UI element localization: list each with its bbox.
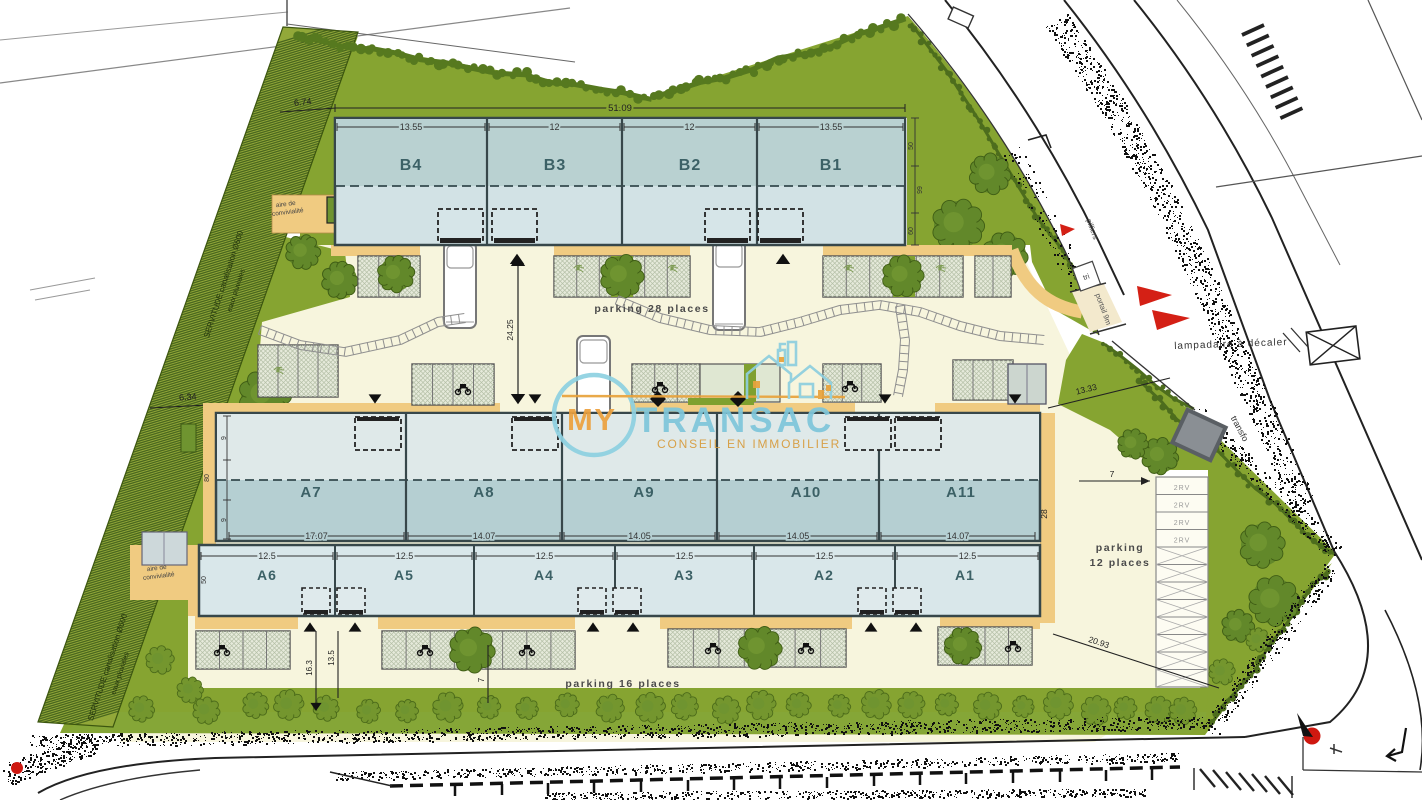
svg-text:6.74: 6.74 — [293, 96, 311, 108]
svg-text:2RV: 2RV — [1174, 538, 1191, 545]
svg-text:MY: MY — [567, 402, 617, 437]
svg-text:A3: A3 — [674, 567, 694, 583]
svg-text:2RV: 2RV — [1174, 485, 1191, 492]
svg-text:A6: A6 — [257, 567, 277, 583]
svg-text:A7: A7 — [300, 484, 321, 501]
svg-text:14.07: 14.07 — [947, 531, 970, 541]
svg-text:A9: A9 — [633, 484, 654, 501]
svg-text:A2: A2 — [814, 567, 834, 583]
svg-text:B1: B1 — [820, 157, 842, 174]
svg-text:50: 50 — [201, 576, 208, 584]
svg-text:60: 60 — [908, 227, 915, 235]
svg-text:parking: parking — [1096, 542, 1144, 554]
svg-text:B3: B3 — [544, 157, 566, 174]
svg-text:51.09: 51.09 — [608, 103, 632, 114]
svg-text:12.5: 12.5 — [959, 551, 977, 561]
svg-text:A11: A11 — [946, 484, 976, 501]
svg-text:14.05: 14.05 — [787, 531, 810, 541]
svg-text:12 places: 12 places — [1090, 557, 1151, 569]
svg-text:24.25: 24.25 — [505, 319, 515, 341]
svg-text:2RV: 2RV — [1174, 520, 1191, 527]
svg-text:28: 28 — [1039, 509, 1049, 519]
svg-text:99: 99 — [917, 186, 924, 194]
svg-text:7: 7 — [477, 677, 486, 682]
svg-text:14.07: 14.07 — [473, 531, 496, 541]
svg-text:12.5: 12.5 — [536, 551, 554, 561]
svg-text:9: 9 — [221, 518, 228, 522]
svg-text:B4: B4 — [400, 157, 422, 174]
svg-text:17.07: 17.07 — [305, 531, 328, 541]
svg-text:12: 12 — [684, 122, 694, 132]
svg-text:14.05: 14.05 — [628, 531, 651, 541]
svg-text:A10: A10 — [791, 484, 822, 501]
svg-text:A8: A8 — [473, 484, 494, 501]
svg-text:parking 28 places: parking 28 places — [594, 303, 709, 315]
svg-text:TRANSAC: TRANSAC — [636, 401, 835, 440]
svg-text:parking 16 places: parking 16 places — [565, 678, 680, 690]
svg-text:CONSEIL EN IMMOBILIER: CONSEIL EN IMMOBILIER — [657, 437, 841, 451]
svg-text:12.5: 12.5 — [816, 551, 834, 561]
svg-text:12.5: 12.5 — [676, 551, 694, 561]
svg-text:A1: A1 — [955, 567, 975, 583]
svg-text:A5: A5 — [394, 567, 414, 583]
svg-text:B2: B2 — [679, 157, 701, 174]
svg-text:12.5: 12.5 — [258, 551, 276, 561]
svg-text:9: 9 — [221, 436, 228, 440]
svg-text:2RV: 2RV — [1174, 503, 1191, 510]
svg-text:80: 80 — [204, 474, 211, 482]
svg-text:13.5: 13.5 — [327, 650, 336, 666]
svg-text:13.55: 13.55 — [820, 122, 843, 132]
svg-text:A4: A4 — [534, 567, 554, 583]
svg-text:50: 50 — [908, 142, 915, 150]
svg-text:12: 12 — [549, 122, 559, 132]
svg-text:12.5: 12.5 — [396, 551, 414, 561]
svg-text:16.3: 16.3 — [305, 660, 314, 676]
svg-text:7: 7 — [1110, 469, 1115, 479]
svg-text:13.55: 13.55 — [400, 122, 423, 132]
svg-text:6.34: 6.34 — [179, 391, 197, 402]
